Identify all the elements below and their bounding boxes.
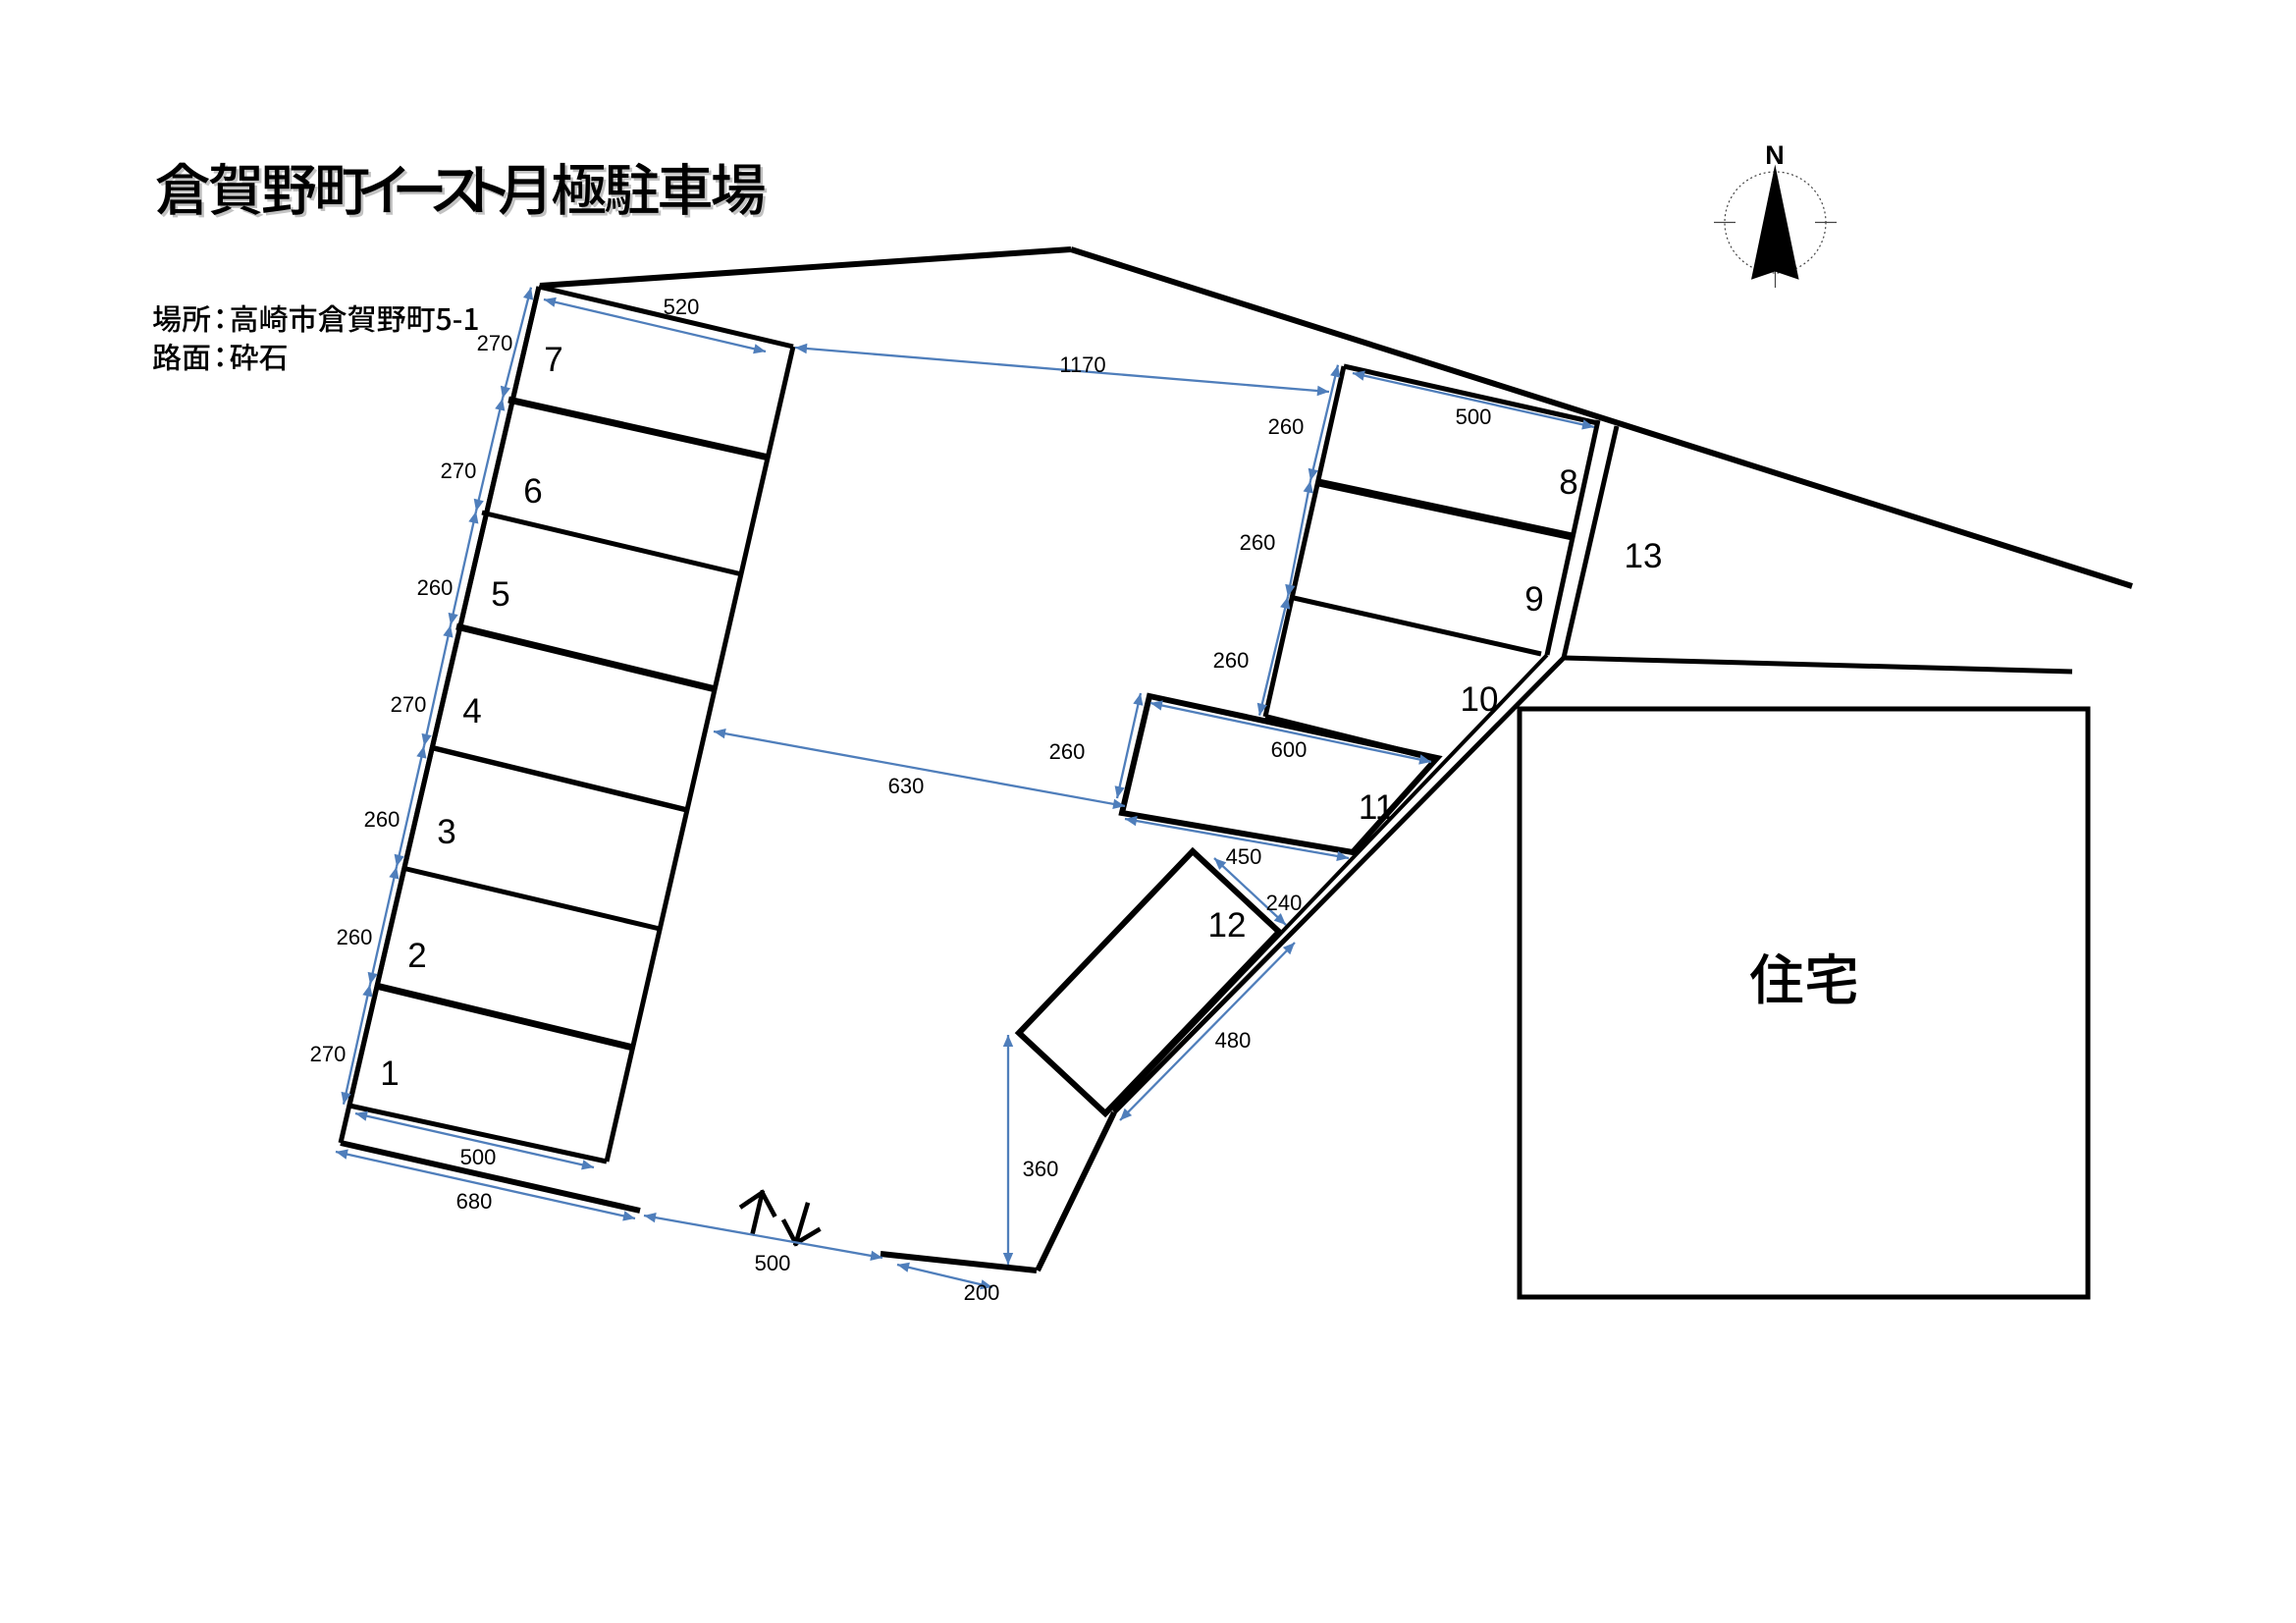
svg-text:270: 270: [310, 1042, 347, 1066]
svg-text:4: 4: [462, 692, 481, 730]
svg-text:600: 600: [1271, 737, 1308, 762]
svg-text:7: 7: [544, 341, 562, 379]
svg-text:520: 520: [664, 295, 700, 319]
svg-text:500: 500: [460, 1145, 497, 1169]
svg-text:270: 270: [391, 692, 427, 717]
svg-text:260: 260: [1213, 648, 1250, 673]
svg-text:260: 260: [1240, 530, 1276, 555]
svg-text:N: N: [1765, 140, 1785, 170]
svg-text:240: 240: [1266, 891, 1303, 915]
svg-text:6: 6: [523, 472, 542, 511]
svg-text:360: 360: [1023, 1157, 1059, 1181]
svg-text:9: 9: [1524, 580, 1543, 619]
svg-text:630: 630: [888, 774, 925, 798]
svg-text:480: 480: [1215, 1028, 1252, 1053]
svg-text:260: 260: [1049, 739, 1086, 764]
svg-text:270: 270: [441, 459, 477, 483]
svg-text:260: 260: [417, 575, 454, 600]
svg-text:13: 13: [1625, 537, 1663, 575]
svg-text:680: 680: [456, 1189, 493, 1214]
svg-text:2: 2: [407, 937, 426, 975]
svg-text:1: 1: [380, 1055, 399, 1093]
svg-text:3: 3: [437, 813, 455, 851]
svg-text:260: 260: [1268, 414, 1305, 439]
svg-text:10: 10: [1461, 680, 1499, 719]
svg-text:12: 12: [1208, 906, 1247, 945]
svg-text:270: 270: [477, 331, 513, 355]
svg-text:500: 500: [1456, 405, 1492, 429]
svg-text:11: 11: [1359, 788, 1394, 827]
svg-text:260: 260: [337, 925, 373, 949]
svg-text:5: 5: [491, 575, 509, 614]
svg-text:500: 500: [755, 1251, 791, 1275]
svg-text:1170: 1170: [1059, 352, 1105, 377]
svg-text:260: 260: [364, 807, 400, 832]
svg-text:8: 8: [1559, 463, 1577, 502]
svg-text:450: 450: [1226, 844, 1262, 869]
svg-text:200: 200: [964, 1280, 1000, 1305]
